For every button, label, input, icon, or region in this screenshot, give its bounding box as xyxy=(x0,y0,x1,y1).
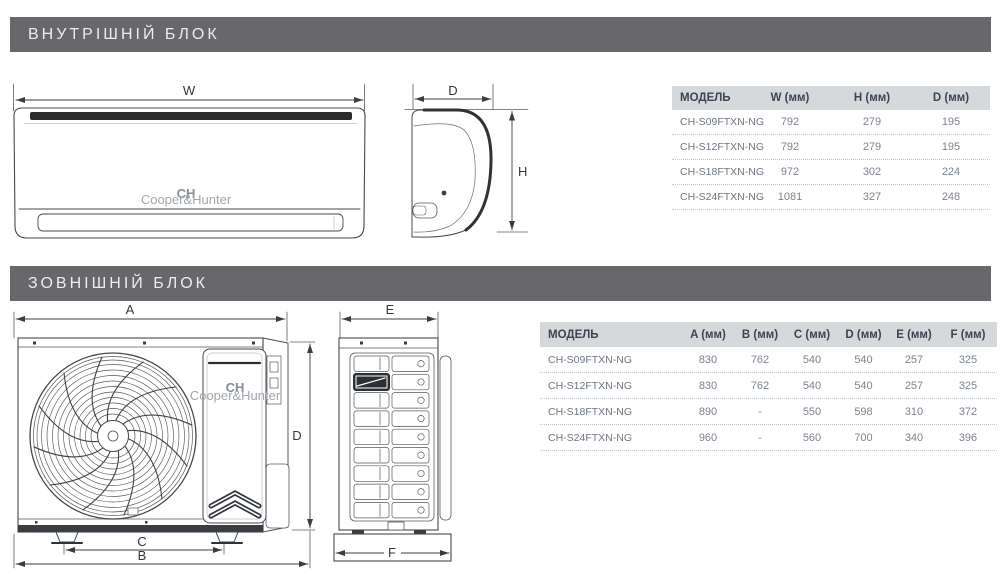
col-header-d: D (мм) xyxy=(912,92,990,104)
dim-label-e: E xyxy=(386,302,395,317)
value-d: 195 xyxy=(912,141,990,153)
base-rail xyxy=(18,525,263,532)
value-w: 792 xyxy=(748,141,832,153)
value-c: 560 xyxy=(786,432,838,444)
value-h: 279 xyxy=(832,141,912,153)
value-d: 540 xyxy=(838,380,889,392)
col-header-h: H (мм) xyxy=(832,92,912,104)
model-name: CH-S18FTXN-NG xyxy=(540,406,682,418)
col-header-model: МОДЕЛЬ xyxy=(540,329,682,341)
dim-label-a: A xyxy=(126,302,135,317)
col-header-b: B (мм) xyxy=(734,329,786,341)
dim-label-c: C xyxy=(137,534,146,549)
value-d: 224 xyxy=(912,166,990,178)
value-e: 257 xyxy=(889,354,939,366)
value-c: 550 xyxy=(786,406,838,418)
model-name: CH-S24FTXN-NG xyxy=(672,191,748,203)
dim-label-d: D xyxy=(448,83,457,98)
table-row: CH-S24FTXN-NG 960 - 560 700 340 396 xyxy=(540,425,997,451)
value-b: - xyxy=(734,406,786,418)
value-f: 396 xyxy=(939,432,997,444)
col-header-a: A (мм) xyxy=(682,329,734,341)
value-d: 700 xyxy=(838,432,889,444)
value-f: 325 xyxy=(939,354,997,366)
col-header-model: МОДЕЛЬ xyxy=(672,92,748,104)
svg-text:Cooper&Hunter: Cooper&Hunter xyxy=(141,192,232,207)
value-w: 792 xyxy=(748,116,832,128)
value-f: 372 xyxy=(939,406,997,418)
indoor-front-view-diagram: W CH Cooper&Hunter xyxy=(14,83,366,238)
carry-handle xyxy=(353,373,390,391)
bottom-air-outlet-flap xyxy=(38,214,343,231)
value-b: 762 xyxy=(734,380,786,392)
model-name: CH-S12FTXN-NG xyxy=(672,141,748,153)
table-row: CH-S09FTXN-NG 792 279 195 xyxy=(672,110,990,135)
value-d: 248 xyxy=(912,191,990,203)
value-w: 1081 xyxy=(748,191,832,203)
col-header-d: D (мм) xyxy=(838,329,889,341)
value-b: - xyxy=(734,432,786,444)
top-air-inlet-grille xyxy=(30,112,352,120)
model-name: CH-S09FTXN-NG xyxy=(540,354,682,366)
dim-label-w: W xyxy=(183,83,196,98)
table-row: CH-S18FTXN-NG 890 - 550 598 310 372 xyxy=(540,399,997,425)
model-name: CH-S09FTXN-NG xyxy=(672,116,748,128)
value-d: 598 xyxy=(838,406,889,418)
value-e: 257 xyxy=(889,380,939,392)
value-a: 830 xyxy=(682,380,734,392)
table-row: CH-S24FTXN-NG 1081 327 248 xyxy=(672,185,990,210)
outdoor-dimensions-table: МОДЕЛЬ A (мм) B (мм) C (мм) D (мм) E (мм… xyxy=(540,322,997,451)
outdoor-front-view-diagram: A xyxy=(14,302,315,568)
model-name: CH-S18FTXN-NG xyxy=(672,166,748,178)
indoor-dimensions-table: МОДЕЛЬ W (мм) H (мм) D (мм) CH-S09FTXN-N… xyxy=(672,86,990,210)
value-h: 279 xyxy=(832,116,912,128)
table-row: CH-S18FTXN-NG 972 302 224 xyxy=(672,160,990,185)
mounting-feet xyxy=(52,532,242,543)
col-header-c: C (мм) xyxy=(786,329,838,341)
value-e: 310 xyxy=(889,406,939,418)
model-name: CH-S12FTXN-NG xyxy=(540,380,682,392)
value-e: 340 xyxy=(889,432,939,444)
dim-label-d: D xyxy=(292,428,301,443)
value-b: 762 xyxy=(734,354,786,366)
indoor-side-view-diagram: D H xyxy=(405,83,528,237)
table-header-row: МОДЕЛЬ A (мм) B (мм) C (мм) D (мм) E (мм… xyxy=(540,322,997,347)
value-h: 302 xyxy=(832,166,912,178)
value-h: 327 xyxy=(832,191,912,203)
table-row: CH-S12FTXN-NG 830 762 540 540 257 325 xyxy=(540,373,997,399)
value-c: 540 xyxy=(786,380,838,392)
table-header-row: МОДЕЛЬ W (мм) H (мм) D (мм) xyxy=(672,86,990,110)
value-w: 972 xyxy=(748,166,832,178)
dim-label-h: H xyxy=(518,164,527,179)
svg-text:Cooper&Hunter: Cooper&Hunter xyxy=(190,388,281,403)
col-header-w: W (мм) xyxy=(748,92,832,104)
value-f: 325 xyxy=(939,380,997,392)
col-header-f: F (мм) xyxy=(939,329,997,341)
value-c: 540 xyxy=(786,354,838,366)
model-name: CH-S24FTXN-NG xyxy=(540,432,682,444)
value-a: 830 xyxy=(682,354,734,366)
value-a: 960 xyxy=(682,432,734,444)
dim-label-b: B xyxy=(138,548,147,563)
outdoor-side-view-diagram: E xyxy=(334,302,451,561)
value-d: 540 xyxy=(838,354,889,366)
table-row: CH-S12FTXN-NG 792 279 195 xyxy=(672,135,990,160)
table-row: CH-S09FTXN-NG 830 762 540 540 257 325 xyxy=(540,347,997,373)
dim-label-f: F xyxy=(388,545,396,560)
value-a: 890 xyxy=(682,406,734,418)
col-header-e: E (мм) xyxy=(889,329,939,341)
value-d: 195 xyxy=(912,116,990,128)
